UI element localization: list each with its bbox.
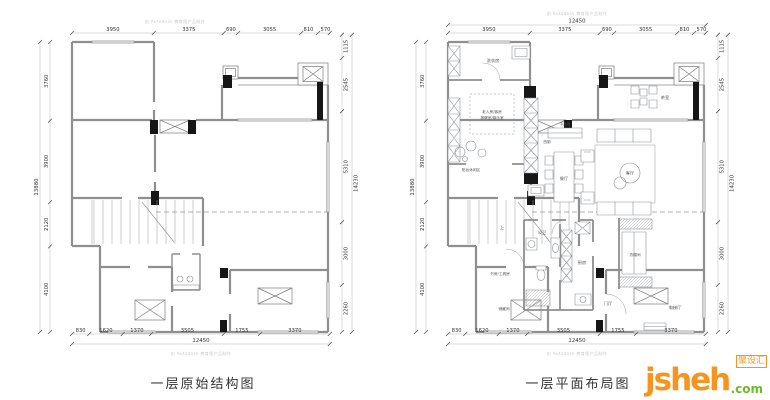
room-label-living: 客厅 [626, 170, 634, 177]
furniture [448, 46, 666, 330]
dim-label: 3760 [44, 75, 50, 88]
dim-total-label: 13880 [34, 178, 40, 196]
room-label-study: 书房/工具房 [490, 271, 510, 276]
dim-total-label: 12450 [568, 338, 586, 344]
dim-label: 2260 [344, 302, 350, 315]
plan-original-structure: 3950 3375 690 3055 810 570 830 1620 1370… [34, 18, 360, 356]
dim-label: 3950 [482, 27, 495, 33]
dim-total-label: 13880 [410, 178, 416, 196]
dim-label: 1755 [235, 328, 248, 334]
dim-label: 3950 [106, 27, 119, 33]
dim-label: 830 [452, 328, 462, 334]
dim-label: 810 [680, 27, 690, 33]
dim-label: 570 [697, 27, 707, 33]
room-label-dining: 餐厅 [560, 175, 568, 182]
dim-label: 1115 [344, 40, 350, 53]
dim-label: 3375 [558, 27, 571, 33]
dim-total-label: 14230 [354, 174, 360, 192]
dim-label: 3505 [181, 328, 194, 334]
room-label-leisure: 阳台休闲区 [462, 167, 481, 172]
screenshot-root: 3950 3375 690 3055 810 570 830 1620 1370… [0, 0, 770, 400]
dim-total-label: 14230 [730, 174, 736, 192]
dim-label: 1370 [130, 328, 143, 334]
logo-tld: .com [731, 383, 763, 395]
original-bath-rough [172, 254, 200, 290]
watermark-text: 由 Autodesk 教育版产品制作 [547, 10, 607, 16]
watermark-text: 由 Autodesk 教育版产品制作 [547, 350, 607, 356]
dim-label: 4100 [420, 283, 426, 296]
dim-label: 3055 [639, 27, 652, 33]
dim-label: 1620 [99, 328, 112, 334]
room-label-bath: 公卫 [538, 230, 546, 235]
dim-label: 810 [304, 27, 314, 33]
dim-label: 2545 [720, 78, 726, 91]
dim-label: 1620 [475, 328, 488, 334]
room-label-foyer: 门厅 [604, 300, 612, 307]
plan-furnished-layout: 洗衣房 老人房/客房 棋牌室/娱乐室 阳台休闲区 西厨 中岛台 餐厅 客厅 茶室… [410, 10, 736, 356]
dim-label: 690 [602, 27, 612, 33]
dim-label: 5310 [720, 160, 726, 173]
logo-wordmark: jsheh [645, 365, 729, 396]
dim-label: 690 [226, 27, 236, 33]
jsheh-logo[interactable]: jsheh 聚设汇 .com [645, 352, 767, 398]
dim-label: 5310 [344, 160, 350, 173]
room-label-laundry: 洗衣房 [487, 57, 500, 64]
room-label-storage: 储藏间 [498, 306, 509, 311]
room-label-west-kitchen: 西厨 [543, 139, 551, 144]
dim-label: 2120 [420, 218, 426, 231]
dim-label: 3370 [664, 328, 677, 334]
plan-title-original: 一层原始结构图 [118, 373, 288, 392]
watermark-text: 由 Autodesk 教育版产品制作 [171, 350, 231, 356]
room-label-guest-2: 棋牌室/娱乐室 [480, 115, 504, 120]
dim-label: 1115 [720, 40, 726, 53]
dim-label: 2260 [720, 302, 726, 315]
dim-label: 3900 [420, 155, 426, 168]
stair-up-label: 上 [500, 224, 504, 230]
dim-label: 3900 [44, 155, 50, 168]
dim-total-label: 12450 [192, 338, 210, 344]
floorplan-canvas: 3950 3375 690 3055 810 570 830 1620 1370… [0, 0, 770, 400]
watermark-text: 由 Autodesk 教育版产品制作 [145, 18, 205, 24]
room-label-elevator: 电梯厅 [669, 304, 682, 311]
dim-label: 3055 [263, 27, 276, 33]
dim-label: 3000 [720, 247, 726, 260]
dim-label: 3505 [557, 328, 570, 334]
dim-label: 3375 [182, 27, 195, 33]
room-label-kitchen: 厨房 [578, 259, 586, 266]
dim-total-label: 12450 [568, 19, 586, 25]
dim-label: 570 [321, 27, 331, 33]
plan-title-layout: 一层平面布局图 [493, 373, 663, 392]
room-label-cloak: 衣帽间 [629, 252, 640, 257]
dim-label: 3760 [420, 75, 426, 88]
room-label-tea: 茶室 [661, 94, 669, 100]
dim-label: 4100 [44, 283, 50, 296]
dim-label: 2545 [344, 78, 350, 91]
room-label-guest-1: 老人房/客房 [482, 109, 502, 114]
dim-label: 2120 [44, 218, 50, 231]
dim-label: 1755 [611, 328, 624, 334]
logo-badge: 聚设汇 [736, 355, 767, 368]
dim-label: 3370 [288, 328, 301, 334]
dim-label: 3000 [344, 247, 350, 260]
dim-label: 830 [76, 328, 86, 334]
room-label-island: 中岛台 [559, 121, 570, 126]
dim-label: 1370 [506, 328, 519, 334]
